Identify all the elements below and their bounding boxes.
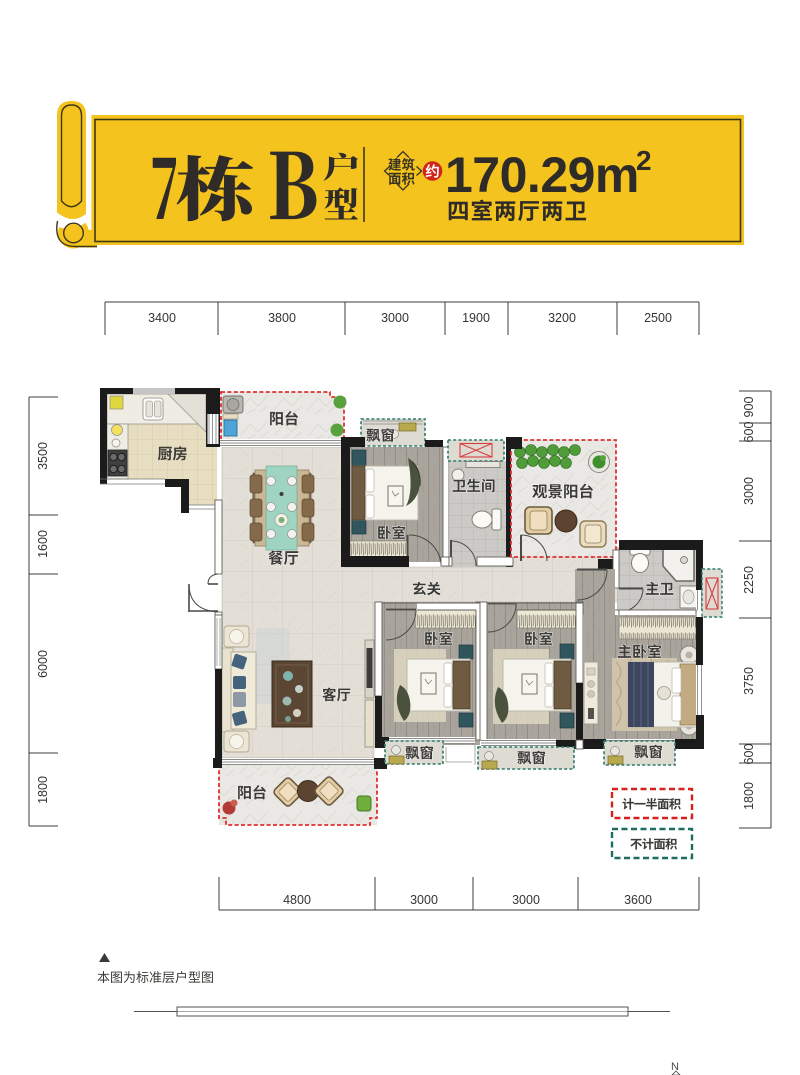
svg-text:N: N [671, 1061, 679, 1073]
svg-text:3800: 3800 [268, 311, 296, 325]
svg-text:3200: 3200 [548, 311, 576, 325]
svg-text:3750: 3750 [742, 667, 756, 695]
svg-text:1800: 1800 [36, 776, 50, 804]
svg-text:1600: 1600 [36, 530, 50, 558]
svg-text:3500: 3500 [36, 442, 50, 470]
svg-text:6000: 6000 [36, 650, 50, 678]
svg-text:1800: 1800 [742, 782, 756, 810]
svg-text:3000: 3000 [410, 893, 438, 907]
svg-text:900: 900 [742, 397, 756, 418]
svg-text:3000: 3000 [381, 311, 409, 325]
svg-text:170.29m: 170.29m [445, 147, 639, 203]
svg-text:2250: 2250 [742, 566, 756, 594]
svg-text:2500: 2500 [644, 311, 672, 325]
svg-text:3400: 3400 [148, 311, 176, 325]
svg-text:1900: 1900 [462, 311, 490, 325]
svg-text:3000: 3000 [742, 477, 756, 505]
svg-text:3600: 3600 [624, 893, 652, 907]
svg-text:3000: 3000 [512, 893, 540, 907]
svg-text:4800: 4800 [283, 893, 311, 907]
svg-text:600: 600 [742, 422, 756, 443]
svg-text:2: 2 [636, 145, 652, 176]
svg-text:600: 600 [742, 744, 756, 765]
